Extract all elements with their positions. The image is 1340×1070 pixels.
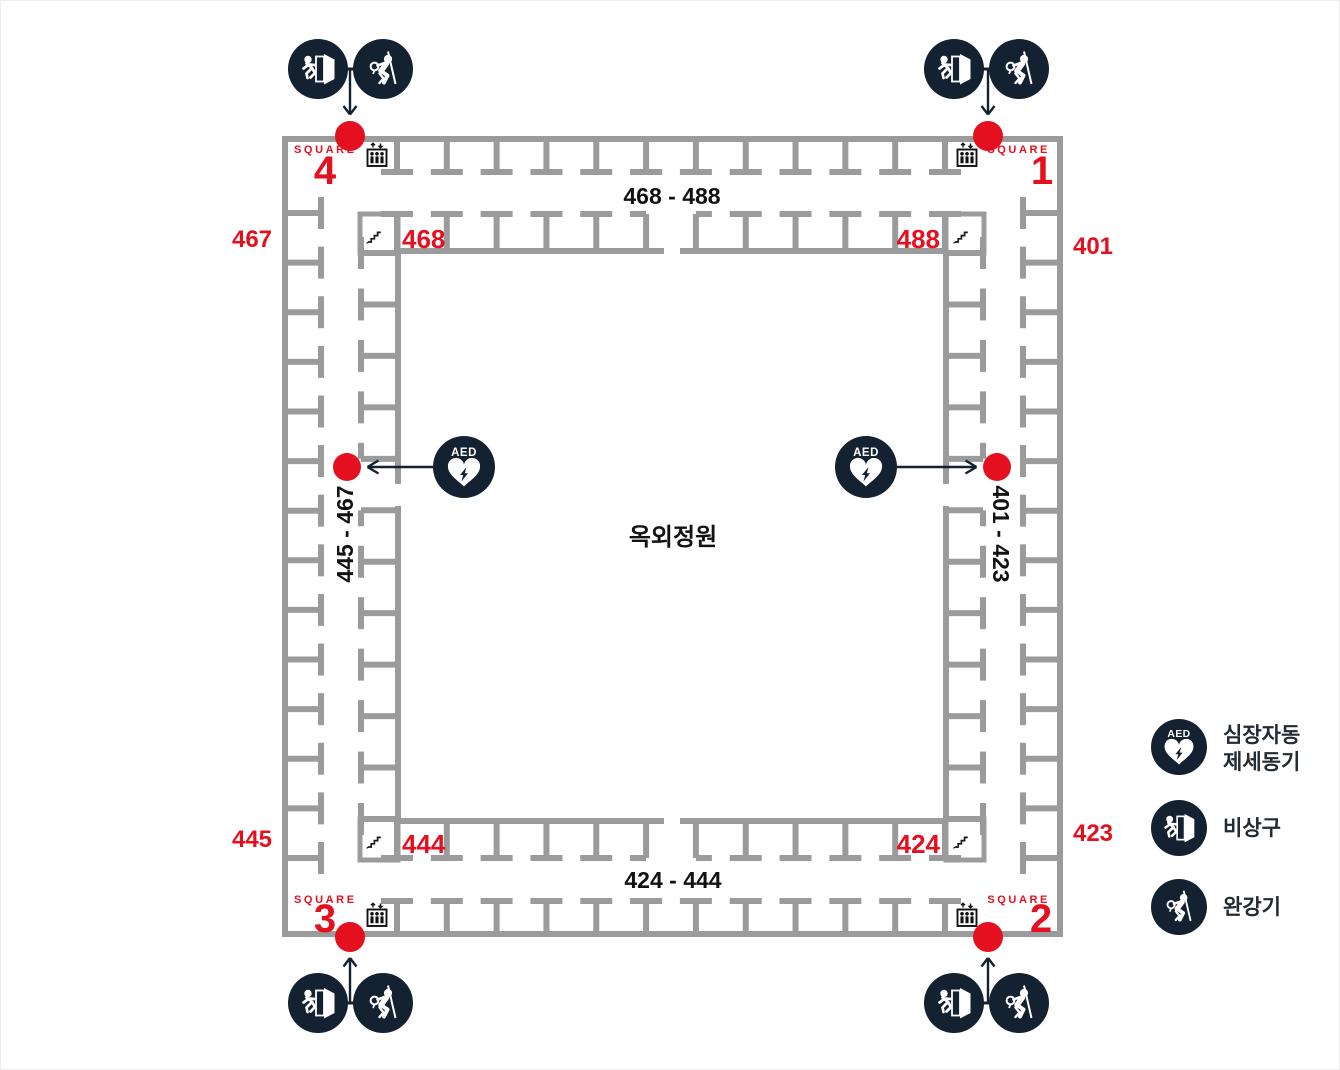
elevator-icon [958,903,977,926]
room-label-401: 401 [1073,233,1113,260]
exit-descender-pair-top-right [924,39,1049,99]
exit-dot-bottom-right [973,922,1003,952]
legend-aed-icon [1151,719,1207,775]
elevator-icon [368,903,387,926]
stairs-icon [367,837,381,848]
range-label-top: 468 - 488 [623,183,720,209]
room-label-467: 467 [232,226,272,253]
range-label-left: 445 - 467 [332,485,358,582]
legend-aed-label-line2: 제세동기 [1223,751,1300,774]
exit-dot-bottom-left [335,922,365,952]
stairs-icon [367,232,381,243]
legend-exit-icon [1151,800,1207,856]
elevator-icon [958,143,977,166]
legend-aed-label-line1: 심장자동 [1223,724,1300,747]
aed-marker-left [433,436,495,498]
room-label-444: 444 [402,829,446,859]
room-label-424: 424 [897,829,941,859]
stairs-icon [954,837,968,848]
room-label-468: 468 [402,224,445,254]
room-label-423: 423 [1073,820,1113,847]
aed-marker-right [835,436,897,498]
aed-dot-left [333,453,361,481]
square-number-bottom-right: 2 [1030,897,1052,941]
room-label-488: 488 [897,224,940,254]
range-label-bottom: 424 - 444 [624,867,721,893]
square-number-top-right: 1 [1031,149,1053,193]
center-label: 옥외정원 [629,524,717,551]
legend-descender-label: 완강기 [1223,896,1281,919]
square-number-bottom-left: 3 [314,897,336,941]
floor-plan-svg: AED [1,1,1340,1070]
square-number-top-left: 4 [314,149,337,193]
range-label-right: 401 - 423 [988,485,1014,582]
legend: 심장자동 제세동기 비상구 완강기 [1151,719,1300,935]
exit-descender-pair-bottom-right [924,973,1049,1033]
stair-room [360,819,398,860]
aed-dot-right [983,453,1011,481]
stair-room [360,214,398,253]
floor-plan-page: AED [0,0,1340,1070]
room-label-445: 445 [232,826,272,853]
stairs-icon [954,232,968,243]
legend-descender-icon [1151,879,1207,935]
elevator-icon [368,143,387,166]
legend-exit-label: 비상구 [1223,817,1281,840]
arrow-right-aed [897,461,977,474]
